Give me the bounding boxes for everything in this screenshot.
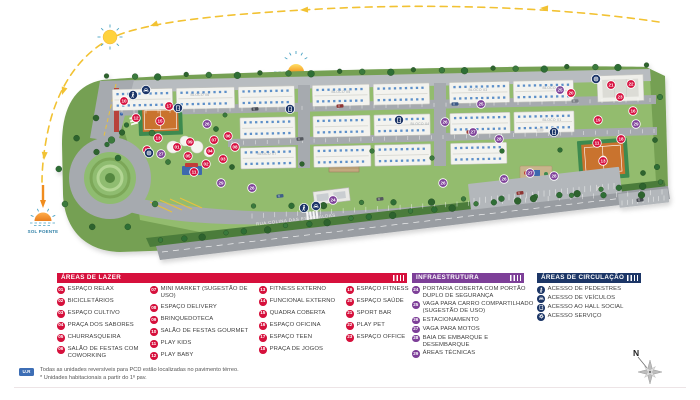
- pedestrian-icon: [537, 286, 545, 294]
- legend-badge: 16: [259, 322, 267, 330]
- legend-item-label: MINI MARKET (SUGESTÃO DE USO): [161, 286, 254, 300]
- legend-badge: 13: [259, 286, 267, 294]
- legend-badge: 20: [346, 298, 354, 306]
- legend-item: 29ÁREAS TÉCNICAS: [412, 350, 534, 358]
- legend-badge: 18: [259, 346, 267, 354]
- legend-badge: 21: [346, 310, 354, 318]
- legend-badge: 11: [150, 340, 158, 348]
- note-line-1: Todas as unidades reversíveis para PCD e…: [40, 367, 239, 375]
- legend-badge: 28: [412, 335, 420, 343]
- legend-item-label: ESPAÇO SAÚDE: [357, 298, 404, 305]
- legend-lazer-column: 13FITNESS EXTERNO14FUNCIONAL EXTERNO15QU…: [259, 286, 345, 358]
- legend-lazer-column: 01ESPAÇO RELAX02BICICLETÁRIOS03ESPAÇO CU…: [57, 286, 145, 364]
- legend-item: 23ESPAÇO OFFICE: [346, 334, 422, 342]
- legend-item: 17ESPAÇO TEEN: [259, 334, 345, 342]
- legend-badge: 01: [57, 286, 65, 294]
- legend-item: 07MINI MARKET (SUGESTÃO DE USO): [150, 286, 254, 300]
- legend-badge: 23: [346, 334, 354, 342]
- legend-item-label: ACESSO AO HALL SOCIAL: [548, 304, 624, 311]
- page-divider: [14, 387, 686, 388]
- legend-item: 22PLAY PET: [346, 322, 422, 330]
- legend-item: 05CHURRASQUEIRA: [57, 334, 145, 342]
- legend-badge: 14: [259, 298, 267, 306]
- legend-badge: 06: [57, 346, 65, 354]
- legend-header-lazer: ÁREAS DE LAZER: [57, 273, 407, 283]
- legend-item-label: PRAÇA DE JOGOS: [270, 346, 323, 353]
- legend-badge: 09: [150, 316, 158, 324]
- legend-item-label: ESPAÇO CULTIVO: [68, 310, 120, 317]
- legend-item-label: ACESSO DE VEÍCULOS: [548, 295, 616, 302]
- vehicle-icon: [537, 295, 545, 303]
- legend-item-label: ESPAÇO OFFICE: [357, 334, 406, 341]
- legend-item: 16ESPAÇO OFICINA: [259, 322, 345, 330]
- legend-item: ACESSO DE VEÍCULOS: [537, 295, 649, 303]
- legend-item-label: QUADRA COBERTA: [270, 310, 326, 317]
- legend-item: 04PRAÇA DOS SABORES: [57, 322, 145, 330]
- legend-item: 09BRINQUEDOTECA: [150, 316, 254, 324]
- legend-badge: 19: [346, 286, 354, 294]
- legend-item-label: VAGA PARA CARRO COMPARTILHADO (SUGESTÃO …: [423, 301, 534, 315]
- hall-icon: [537, 304, 545, 312]
- legend-badge: 24: [412, 286, 420, 294]
- legend-item-label: SPORT BAR: [357, 310, 392, 317]
- legend-item: 18PRAÇA DE JOGOS: [259, 346, 345, 354]
- legend-item: 10SALÃO DE FESTAS GOURMET: [150, 328, 254, 336]
- legend-badge: 12: [150, 352, 158, 360]
- legend-item-label: ESPAÇO RELAX: [68, 286, 114, 293]
- legend-item-label: ESPAÇO OFICINA: [270, 322, 321, 329]
- legend-item-label: ACESSO DE PEDESTRES: [548, 286, 622, 293]
- legend-item: 06SALÃO DE FESTAS COM COWORKING: [57, 346, 145, 360]
- legend-item: 03ESPAÇO CULTIVO: [57, 310, 145, 318]
- legend-item: 28BAIA DE EMBARQUE E DESEMBARQUE: [412, 335, 534, 349]
- legend-badge: 05: [57, 334, 65, 342]
- legend-item: 21SPORT BAR: [346, 310, 422, 318]
- legend-title-lazer: ÁREAS DE LAZER: [61, 274, 121, 281]
- legend-badge: 10: [150, 328, 158, 336]
- legend-item: ACESSO SERVIÇO: [537, 313, 649, 321]
- legend-item-label: ESPAÇO FITNESS: [357, 286, 409, 293]
- legend-item: 15QUADRA COBERTA: [259, 310, 345, 318]
- legend-item-label: ESPAÇO DELIVERY: [161, 304, 217, 311]
- legend-item-label: ÁREAS TÉCNICAS: [423, 350, 476, 357]
- legend-item-label: BICICLETÁRIOS: [68, 298, 114, 305]
- header-barcode-decoration: [508, 275, 521, 281]
- legend-item-label: PORTARIA COBERTA COM PORTÃO DUPLO DE SEG…: [423, 286, 534, 300]
- legend-item: 24PORTARIA COBERTA COM PORTÃO DUPLO DE S…: [412, 286, 534, 300]
- legend-badge: 17: [259, 334, 267, 342]
- legend-badge: 04: [57, 322, 65, 330]
- legend-item-label: VAGA PARA MOTOS: [423, 326, 480, 333]
- legend-lazer-column: 07MINI MARKET (SUGESTÃO DE USO)08ESPAÇO …: [150, 286, 254, 364]
- legend-item: 13FITNESS EXTERNO: [259, 286, 345, 294]
- legend-badge: 08: [150, 304, 158, 312]
- legend-item: 20ESPAÇO SAÚDE: [346, 298, 422, 306]
- legend-badge: 03: [57, 310, 65, 318]
- legend-item: 11PLAY KIDS: [150, 340, 254, 348]
- legend-header-circ: ÁREAS DE CIRCULAÇÃO: [537, 273, 641, 283]
- legend-item-label: ACESSO SERVIÇO: [548, 313, 602, 320]
- legend-item-label: PRAÇA DOS SABORES: [68, 322, 134, 329]
- legend-item: 02BICICLETÁRIOS: [57, 298, 145, 306]
- service-icon: [537, 313, 545, 321]
- legend-item-label: FITNESS EXTERNO: [270, 286, 327, 293]
- legend-badge: 07: [150, 286, 158, 294]
- legend-title-infra: INFRAESTRUTURA: [416, 274, 479, 281]
- legend: ÁREAS DE LAZER INFRAESTRUTURA ÁREAS DE C…: [0, 0, 700, 400]
- legend-badge: 22: [346, 322, 354, 330]
- header-barcode-decoration: [625, 275, 638, 281]
- legend-item: 01ESPAÇO RELAX: [57, 286, 145, 294]
- legend-item-label: CHURRASQUEIRA: [68, 334, 121, 341]
- legend-item: 27VAGA PARA MOTOS: [412, 326, 534, 334]
- legend-item: ACESSO DE PEDESTRES: [537, 286, 649, 294]
- legend-header-infra: INFRAESTRUTURA: [412, 273, 524, 283]
- note-line-2: * Unidades habitacionais a partir do 1º …: [40, 375, 147, 383]
- legend-item-label: BAIA DE EMBARQUE E DESEMBARQUE: [423, 335, 534, 349]
- legend-badge: 15: [259, 310, 267, 318]
- legend-item: 19ESPAÇO FITNESS: [346, 286, 422, 294]
- legend-item: ACESSO AO HALL SOCIAL: [537, 304, 649, 312]
- legend-infra-column: 24PORTARIA COBERTA COM PORTÃO DUPLO DE S…: [412, 286, 534, 359]
- legend-item: 08ESPAÇO DELIVERY: [150, 304, 254, 312]
- legend-badge: 26: [412, 317, 420, 325]
- legend-item: 14FUNCIONAL EXTERNO: [259, 298, 345, 306]
- header-barcode-decoration: [391, 275, 404, 281]
- legend-item: 26ESTACIONAMENTO: [412, 317, 534, 325]
- legend-badge: 02: [57, 298, 65, 306]
- legend-item-label: ESTACIONAMENTO: [423, 317, 479, 324]
- legend-item-label: ESPAÇO TEEN: [270, 334, 312, 341]
- legend-lazer-column: 19ESPAÇO FITNESS20ESPAÇO SAÚDE21SPORT BA…: [346, 286, 422, 346]
- legend-title-circ: ÁREAS DE CIRCULAÇÃO: [541, 274, 624, 281]
- legend-item-label: BRINQUEDOTECA: [161, 316, 214, 323]
- legend-circ-column: ACESSO DE PEDESTRESACESSO DE VEÍCULOSACE…: [537, 286, 649, 322]
- legend-badge: 29: [412, 350, 420, 358]
- site-plan-page: SOL NASCENTE SOL POENTE: [0, 0, 700, 400]
- legend-badge: 27: [412, 326, 420, 334]
- legend-item-label: SALÃO DE FESTAS COM COWORKING: [68, 346, 145, 360]
- legend-item-label: SALÃO DE FESTAS GOURMET: [161, 328, 249, 335]
- legend-item: 12PLAY BABY: [150, 352, 254, 360]
- legend-item: 25VAGA PARA CARRO COMPARTILHADO (SUGESTÃ…: [412, 301, 534, 315]
- legend-item-label: PLAY PET: [357, 322, 385, 329]
- legend-item-label: FUNCIONAL EXTERNO: [270, 298, 336, 305]
- legend-badge: 25: [412, 301, 420, 309]
- note-tag: U.R: [19, 368, 34, 376]
- legend-item-label: PLAY KIDS: [161, 340, 192, 347]
- legend-item-label: PLAY BABY: [161, 352, 194, 359]
